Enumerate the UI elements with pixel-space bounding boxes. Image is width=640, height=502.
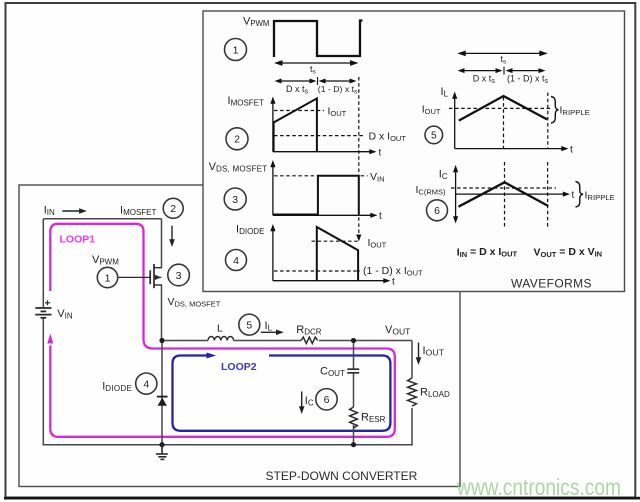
svg-text:www.cntronics.com: www.cntronics.com (456, 474, 621, 500)
svg-text:3: 3 (176, 270, 182, 282)
svg-text:t: t (572, 190, 575, 201)
svg-text:(1 - D) x ts: (1 - D) x ts (507, 74, 549, 86)
svg-text:WAVEFORMS: WAVEFORMS (511, 277, 592, 291)
svg-text:6: 6 (324, 394, 330, 406)
svg-text:(1 - D) x ts: (1 - D) x ts (318, 84, 358, 96)
svg-text:6: 6 (434, 205, 440, 217)
svg-text:VOUT: VOUT (385, 324, 410, 337)
svg-text:STEP-DOWN CONVERTER: STEP-DOWN CONVERTER (266, 469, 418, 483)
svg-text:1: 1 (233, 44, 239, 56)
svg-text:LOOP2: LOOP2 (221, 361, 257, 373)
svg-text:t: t (379, 148, 382, 159)
svg-text:LOOP1: LOOP1 (60, 234, 96, 246)
svg-text:5: 5 (246, 319, 252, 331)
svg-text:4: 4 (233, 255, 239, 267)
svg-text:L: L (217, 323, 223, 335)
svg-text:IOUT: IOUT (423, 345, 445, 358)
svg-text:2: 2 (234, 134, 240, 146)
svg-text:t: t (392, 277, 395, 288)
svg-text:5: 5 (431, 131, 437, 142)
svg-text:4: 4 (143, 378, 149, 390)
svg-text:2: 2 (170, 203, 176, 215)
svg-text:1: 1 (105, 272, 111, 284)
svg-text:t: t (379, 211, 382, 222)
svg-text:3: 3 (232, 194, 238, 206)
svg-text:t: t (570, 144, 573, 155)
